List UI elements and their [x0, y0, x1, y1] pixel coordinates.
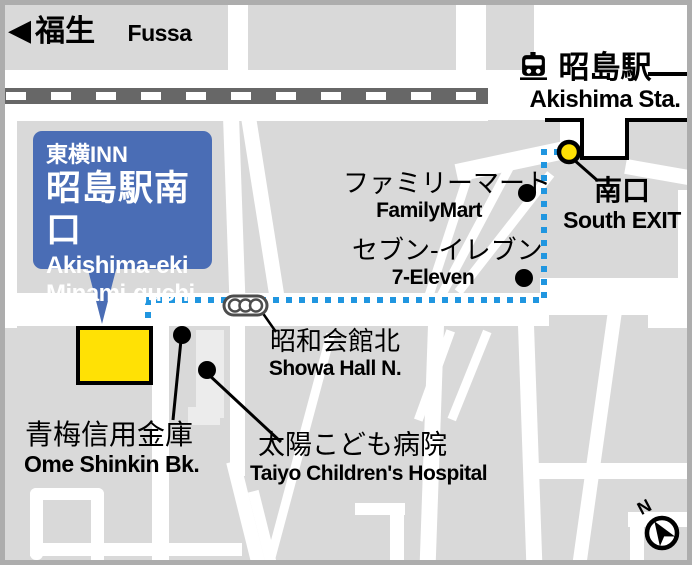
station-name-en: Akishima Sta. — [520, 87, 690, 112]
south-exit-label: 南口 South EXIT — [558, 176, 686, 233]
taiyo-hospital-jp: 太陽こども病院 — [258, 430, 447, 460]
familymart-en: FamilyMart — [343, 200, 515, 222]
showa-hall-en: Showa Hall N. — [264, 358, 406, 380]
station-label: 昭島駅 Akishima Sta. — [520, 52, 690, 112]
familymart-jp: ファミリーマート — [343, 168, 551, 198]
showa-hall-jp: 昭和会館北 — [270, 326, 400, 356]
hotel-name-jp: 昭島駅南口 — [46, 168, 212, 252]
ome-shinkin-jp: 青梅信用金庫 — [25, 419, 193, 450]
fussa-label-jp: 福生 — [35, 15, 95, 48]
station-name-jp: 昭島駅 — [559, 52, 652, 85]
south-exit-en: South EXIT — [558, 208, 686, 232]
fussa-direction-sign: ◀ 福生 Fussa — [8, 16, 192, 48]
poi-ome-shinkin-label: 青梅信用金庫 Ome Shinkin Bk. — [24, 420, 194, 477]
train-icon — [520, 52, 547, 80]
hotel-callout: 東横INN 昭島駅南口 Akishima-eki Minami-guchi — [33, 131, 212, 269]
poi-taiyo-hospital-label: 太陽こども病院 Taiyo Children's Hospital — [250, 431, 455, 485]
ome-shinkin-en: Ome Shinkin Bk. — [24, 452, 194, 476]
poi-dot-seven-eleven — [515, 269, 533, 287]
hotel-brand: 東横INN — [46, 142, 212, 168]
poi-seven-eleven-label: セブン-イレブン 7-Eleven — [352, 237, 514, 289]
hotel-name-en-line2: Minami-guchi — [46, 280, 212, 308]
south-exit-jp: 南口 — [594, 175, 650, 206]
access-map: ◀ 福生 Fussa 昭島駅 Akishima Sta. ファミリーマート Fa… — [0, 0, 692, 565]
poi-showa-hall-label: 昭和会館北 Showa Hall N. — [264, 328, 406, 380]
poi-dot-taiyo-hospital — [198, 361, 216, 379]
west-arrow-icon: ◀ — [8, 16, 31, 46]
south-exit-marker — [559, 142, 579, 162]
poi-dot-ome-shinkin — [173, 326, 191, 344]
compass-north-icon — [647, 516, 677, 548]
fussa-label-en: Fussa — [128, 20, 192, 46]
hotel-name-en-line1: Akishima-eki — [46, 252, 212, 280]
seven-eleven-en: 7-Eleven — [352, 267, 514, 289]
poi-familymart-label: ファミリーマート FamilyMart — [343, 170, 515, 222]
leader-ome — [173, 340, 181, 420]
hotel-marker — [76, 326, 153, 385]
taiyo-hospital-en: Taiyo Children's Hospital — [250, 463, 455, 485]
traffic-light-icon — [224, 296, 267, 315]
seven-eleven-jp: セブン-イレブン — [352, 235, 543, 265]
